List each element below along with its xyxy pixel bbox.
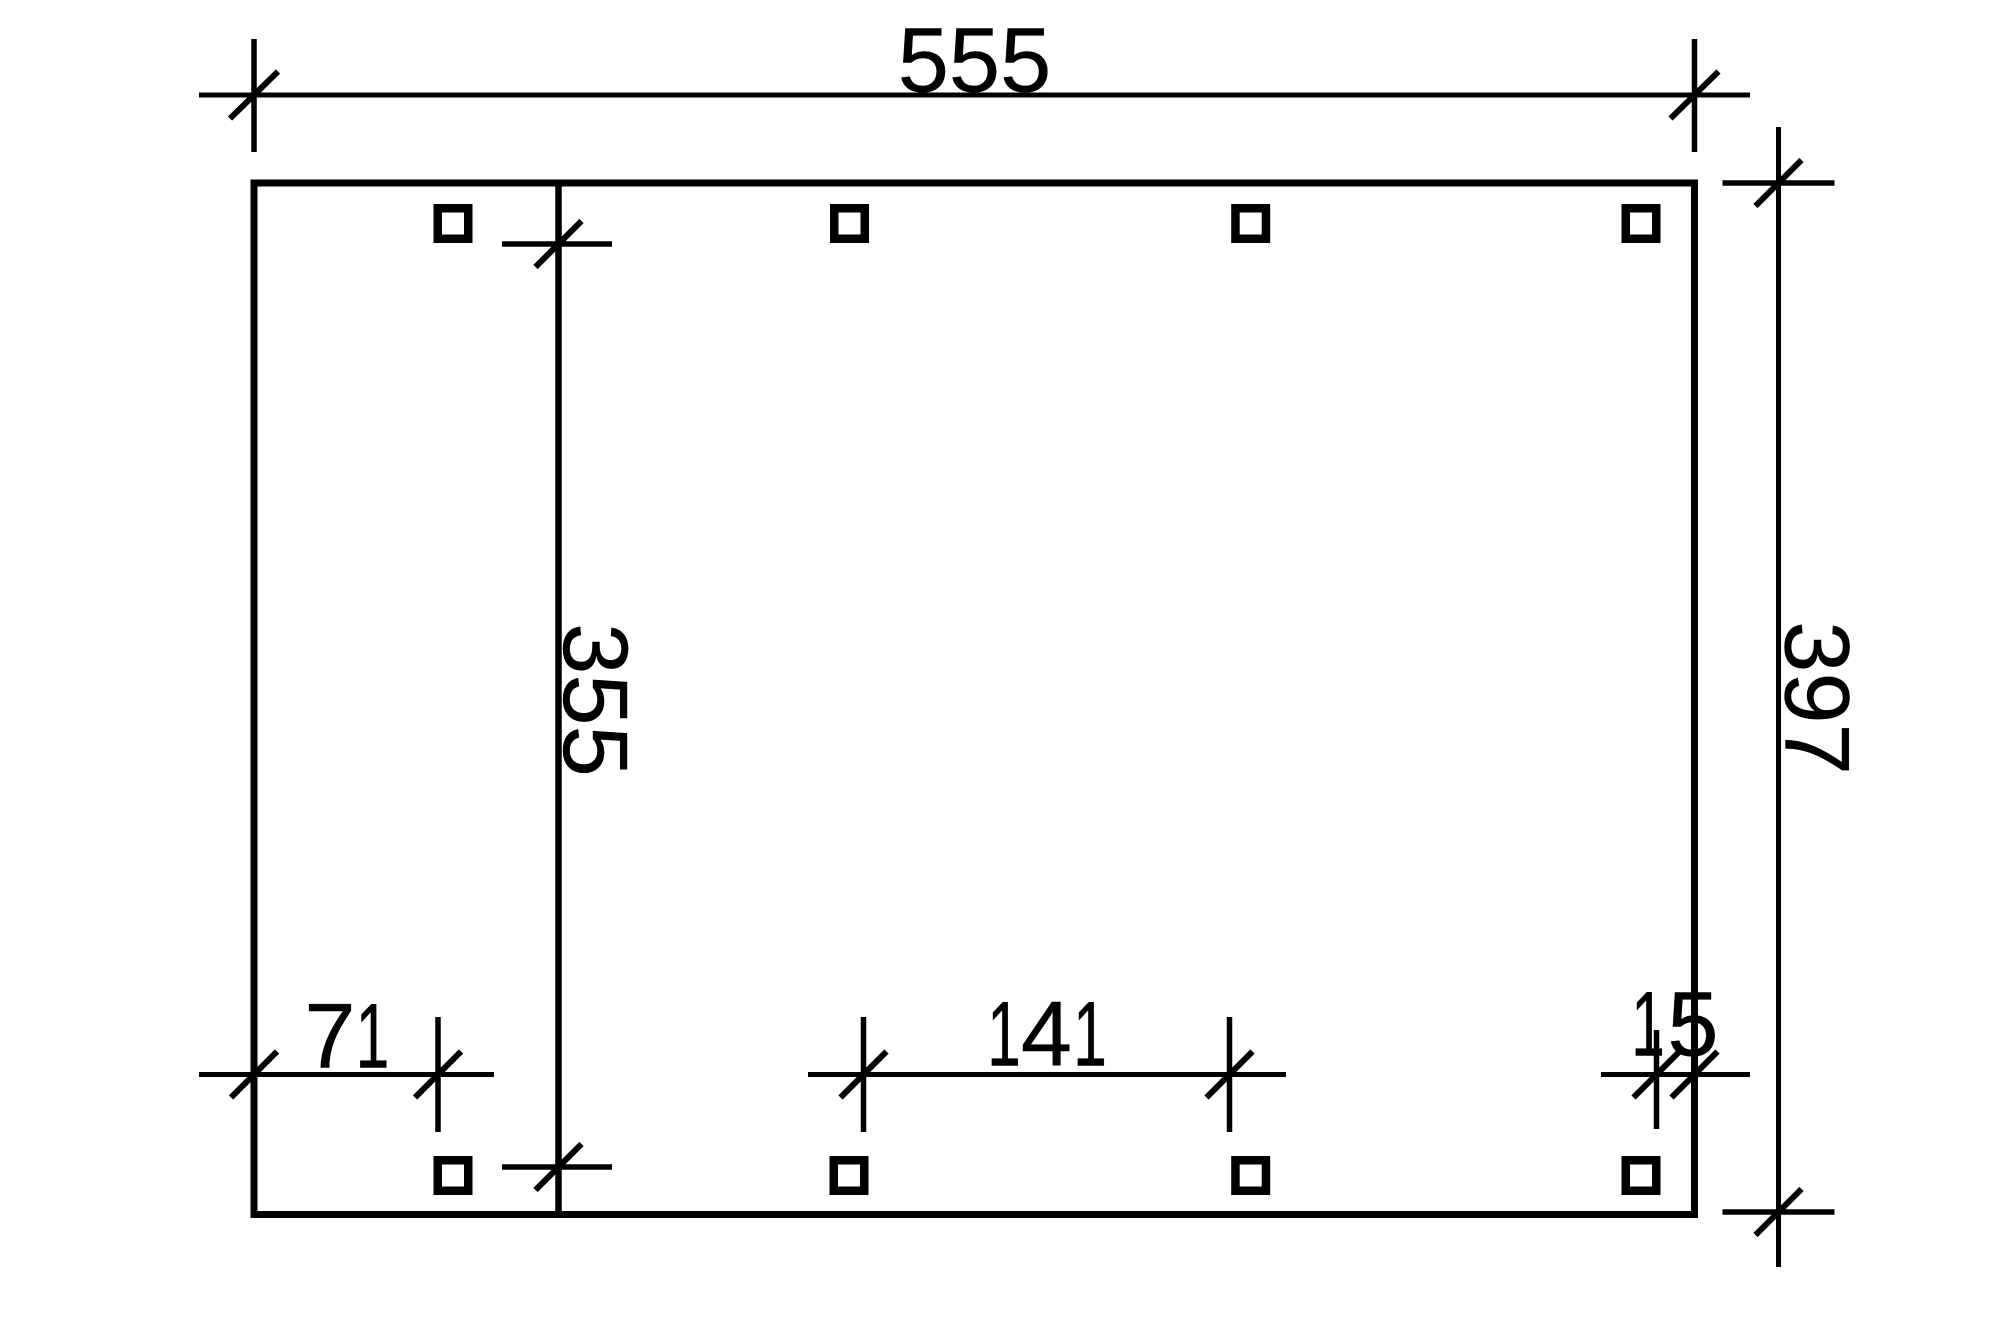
svg-text:1: 1 [987, 982, 1021, 1086]
svg-text:1: 1 [356, 984, 390, 1088]
svg-text:7: 7 [304, 986, 355, 1088]
svg-text:555: 555 [898, 10, 1052, 112]
svg-text:5: 5 [1667, 974, 1718, 1076]
svg-text:1: 1 [1631, 972, 1665, 1076]
svg-text:355: 355 [544, 623, 646, 777]
svg-text:1: 1 [1073, 982, 1107, 1086]
svg-text:4: 4 [1021, 984, 1072, 1086]
svg-text:397: 397 [1766, 621, 1868, 775]
